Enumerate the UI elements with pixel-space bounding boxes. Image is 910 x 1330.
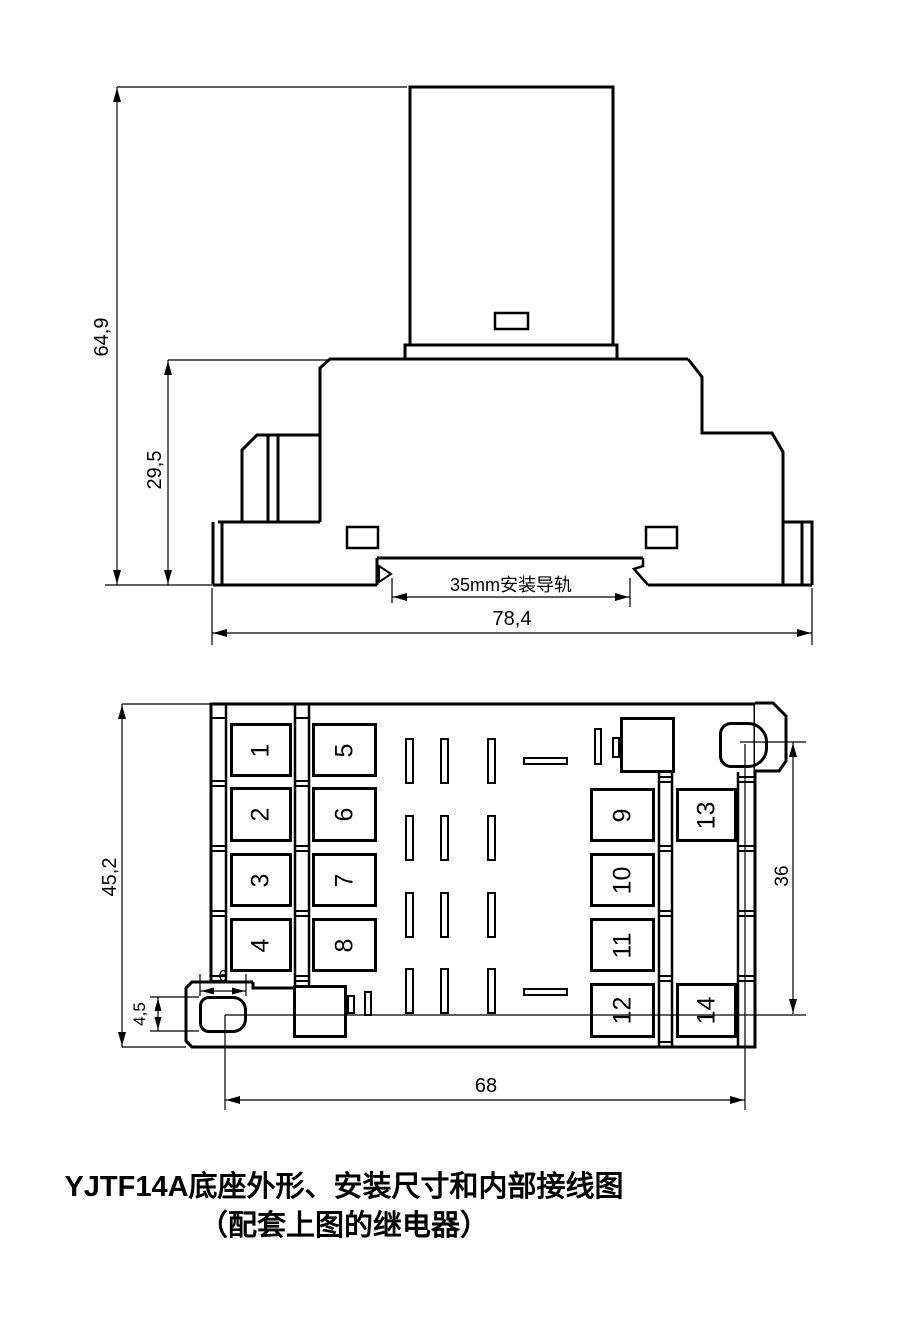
dim-hole-height-label: 4,5 <box>120 994 160 1034</box>
terminal-number: 4 <box>249 938 274 952</box>
terminal-number: 14 <box>694 997 719 1025</box>
drawing-linework <box>0 0 910 1330</box>
dim-hole-span-vertical-label: 36 <box>763 856 803 896</box>
vent-slot <box>405 968 414 1014</box>
terminal-number: 1 <box>249 743 274 757</box>
caption-line2: （配套上图的继电器） <box>53 1207 635 1246</box>
corner-block-bottom-left <box>293 985 347 1038</box>
vent-slot-small-top <box>594 728 602 765</box>
terminal-cell-4: 4 <box>230 918 292 972</box>
terminal-cell-10: 10 <box>590 853 655 907</box>
vent-slot <box>405 738 414 784</box>
terminal-number: 5 <box>332 743 357 757</box>
vent-slot <box>405 892 414 938</box>
terminal-number: 2 <box>249 808 274 822</box>
socket-clip-right <box>646 527 677 548</box>
terminal-number: 7 <box>332 873 357 887</box>
terminal-number: 10 <box>610 866 635 894</box>
corner-block-tab-bottom-left <box>347 995 355 1014</box>
din-rail-label: 35mm安装导轨 <box>446 572 576 596</box>
vent-slot <box>440 968 449 1014</box>
vent-slot <box>487 892 496 938</box>
terminal-number: 3 <box>249 873 274 887</box>
vent-slot <box>440 815 449 861</box>
terminal-cell-14: 14 <box>676 983 737 1038</box>
technical-drawing-page: 1 2 3 4 5 6 7 8 9 10 11 12 13 14 64,9 29… <box>0 0 910 1330</box>
vent-slot <box>487 738 496 784</box>
terminal-cell-5: 5 <box>312 723 377 777</box>
dim-total-height-label: 64,9 <box>82 317 122 357</box>
mounting-hole-bottom-left <box>199 996 247 1033</box>
terminal-cell-12: 12 <box>590 983 655 1038</box>
terminal-cell-7: 7 <box>312 853 377 907</box>
vent-slot <box>487 968 496 1014</box>
caption: YJTF14A底座外形、安装尺寸和内部接线图 （配套上图的继电器） <box>53 1168 635 1246</box>
vent-slot-horizontal <box>523 988 568 996</box>
dim-base-height-label: 29,5 <box>135 450 175 490</box>
vent-slot-small-bottom <box>364 991 372 1016</box>
relay-latch-window <box>495 313 528 329</box>
side-view-socket-outline <box>213 359 812 585</box>
terminal-number: 13 <box>694 801 719 829</box>
vent-slot <box>440 892 449 938</box>
terminal-cell-6: 6 <box>312 787 377 842</box>
mounting-hole-top-right <box>719 722 768 768</box>
corner-block-tab-top-right <box>612 737 620 758</box>
socket-clip-left <box>347 527 378 548</box>
terminal-number: 11 <box>610 932 635 958</box>
dim-hole-span-horizontal-label: 68 <box>464 1074 508 1098</box>
vent-slot-horizontal <box>523 757 568 765</box>
vent-slot <box>440 738 449 784</box>
side-view-relay-outline <box>405 87 617 359</box>
terminal-number: 9 <box>610 808 635 822</box>
terminal-cell-8: 8 <box>312 918 377 972</box>
vent-slot <box>487 815 496 861</box>
terminal-cell-11: 11 <box>590 918 655 972</box>
corner-block-top-right <box>620 717 675 773</box>
relay-body <box>410 87 613 345</box>
terminal-number: 8 <box>332 938 357 952</box>
terminal-cell-2: 2 <box>230 787 292 842</box>
relay-flange <box>405 345 617 359</box>
vent-slot <box>405 815 414 861</box>
terminal-cell-1: 1 <box>230 723 292 777</box>
terminal-cell-3: 3 <box>230 853 292 907</box>
caption-line1: YJTF14A底座外形、安装尺寸和内部接线图 <box>53 1168 635 1207</box>
rail-clip-marker <box>379 566 391 582</box>
dim-total-width-label: 78,4 <box>480 607 544 631</box>
dim-base-depth-label: 45,2 <box>90 857 130 897</box>
terminal-number: 6 <box>332 808 357 822</box>
dim-hole-width-label: 6 <box>212 967 234 987</box>
terminal-number: 12 <box>610 997 635 1025</box>
terminal-cell-13: 13 <box>676 788 737 842</box>
terminal-cell-9: 9 <box>590 788 655 842</box>
